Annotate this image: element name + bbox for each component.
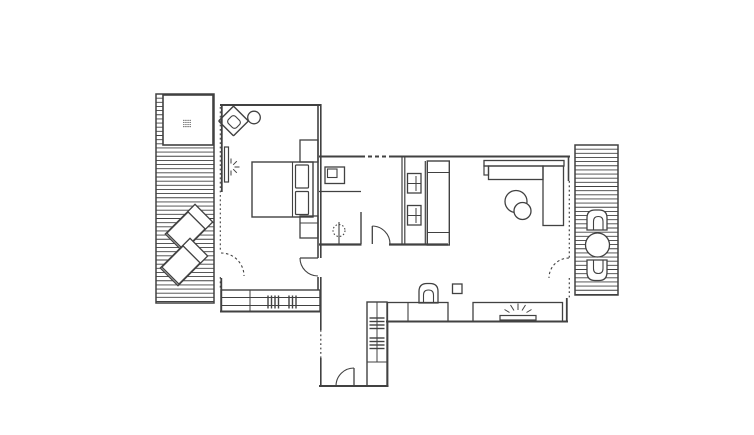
hot-tub-jets [187, 126, 188, 127]
hot-tub-jets [190, 124, 191, 125]
lamp-ray [233, 161, 237, 165]
bedroom-door-arc [300, 258, 318, 276]
hot-tub-jets [185, 122, 186, 123]
nightstand-north [300, 140, 318, 162]
hot-tub-jets [187, 122, 188, 123]
sofa-seat [489, 166, 544, 180]
cooktop-ray [522, 305, 526, 311]
west-deck-door-arc [221, 253, 244, 276]
bath-sink-basin [328, 169, 338, 178]
hot-tub-jets [190, 120, 191, 121]
hot-tub-jets [187, 124, 188, 125]
bedroom-wardrobe [221, 290, 320, 312]
bed-pillow [296, 165, 309, 188]
hot-tub-jets [185, 126, 186, 127]
kitchen-counter-west [388, 303, 449, 322]
cooktop-strip [500, 316, 536, 321]
nightstand-south [300, 216, 318, 238]
patio-chair-south [587, 260, 607, 281]
bed-platform [252, 162, 313, 217]
floor-plan [0, 0, 754, 435]
sofa-armrest [484, 166, 489, 175]
desk-chair [419, 284, 438, 304]
patio-table [586, 233, 610, 257]
side-table [248, 111, 261, 124]
sofa-chaise [543, 166, 564, 226]
lamp-ray [233, 169, 237, 173]
hot-tub-jets [185, 124, 186, 125]
bed-pillow [296, 192, 309, 215]
desk-chair-seat [424, 290, 434, 303]
east-deck-door-arc [549, 258, 569, 278]
hot-tub-jets [183, 124, 184, 125]
mirror-panel [225, 147, 229, 182]
hot-tub-jets [183, 120, 184, 121]
coffee-table-small [514, 203, 531, 220]
floor-plan-drawing [0, 0, 754, 435]
cooktop-ray [527, 310, 532, 313]
stool [453, 284, 463, 294]
bath-door-arc [372, 226, 390, 244]
hot-tub-jets [183, 126, 184, 127]
entry-door-arc [336, 368, 354, 386]
hot-tub-jets [183, 122, 184, 123]
cooktop-ray [505, 310, 510, 313]
hot-tub-jets [190, 126, 191, 127]
patio-chair-north [587, 210, 607, 230]
hot-tub-jets [185, 120, 186, 121]
sofa-back [484, 161, 564, 167]
hot-tub-jets [187, 120, 188, 121]
hot-tub-jets [190, 122, 191, 123]
cooktop-ray [511, 305, 515, 311]
